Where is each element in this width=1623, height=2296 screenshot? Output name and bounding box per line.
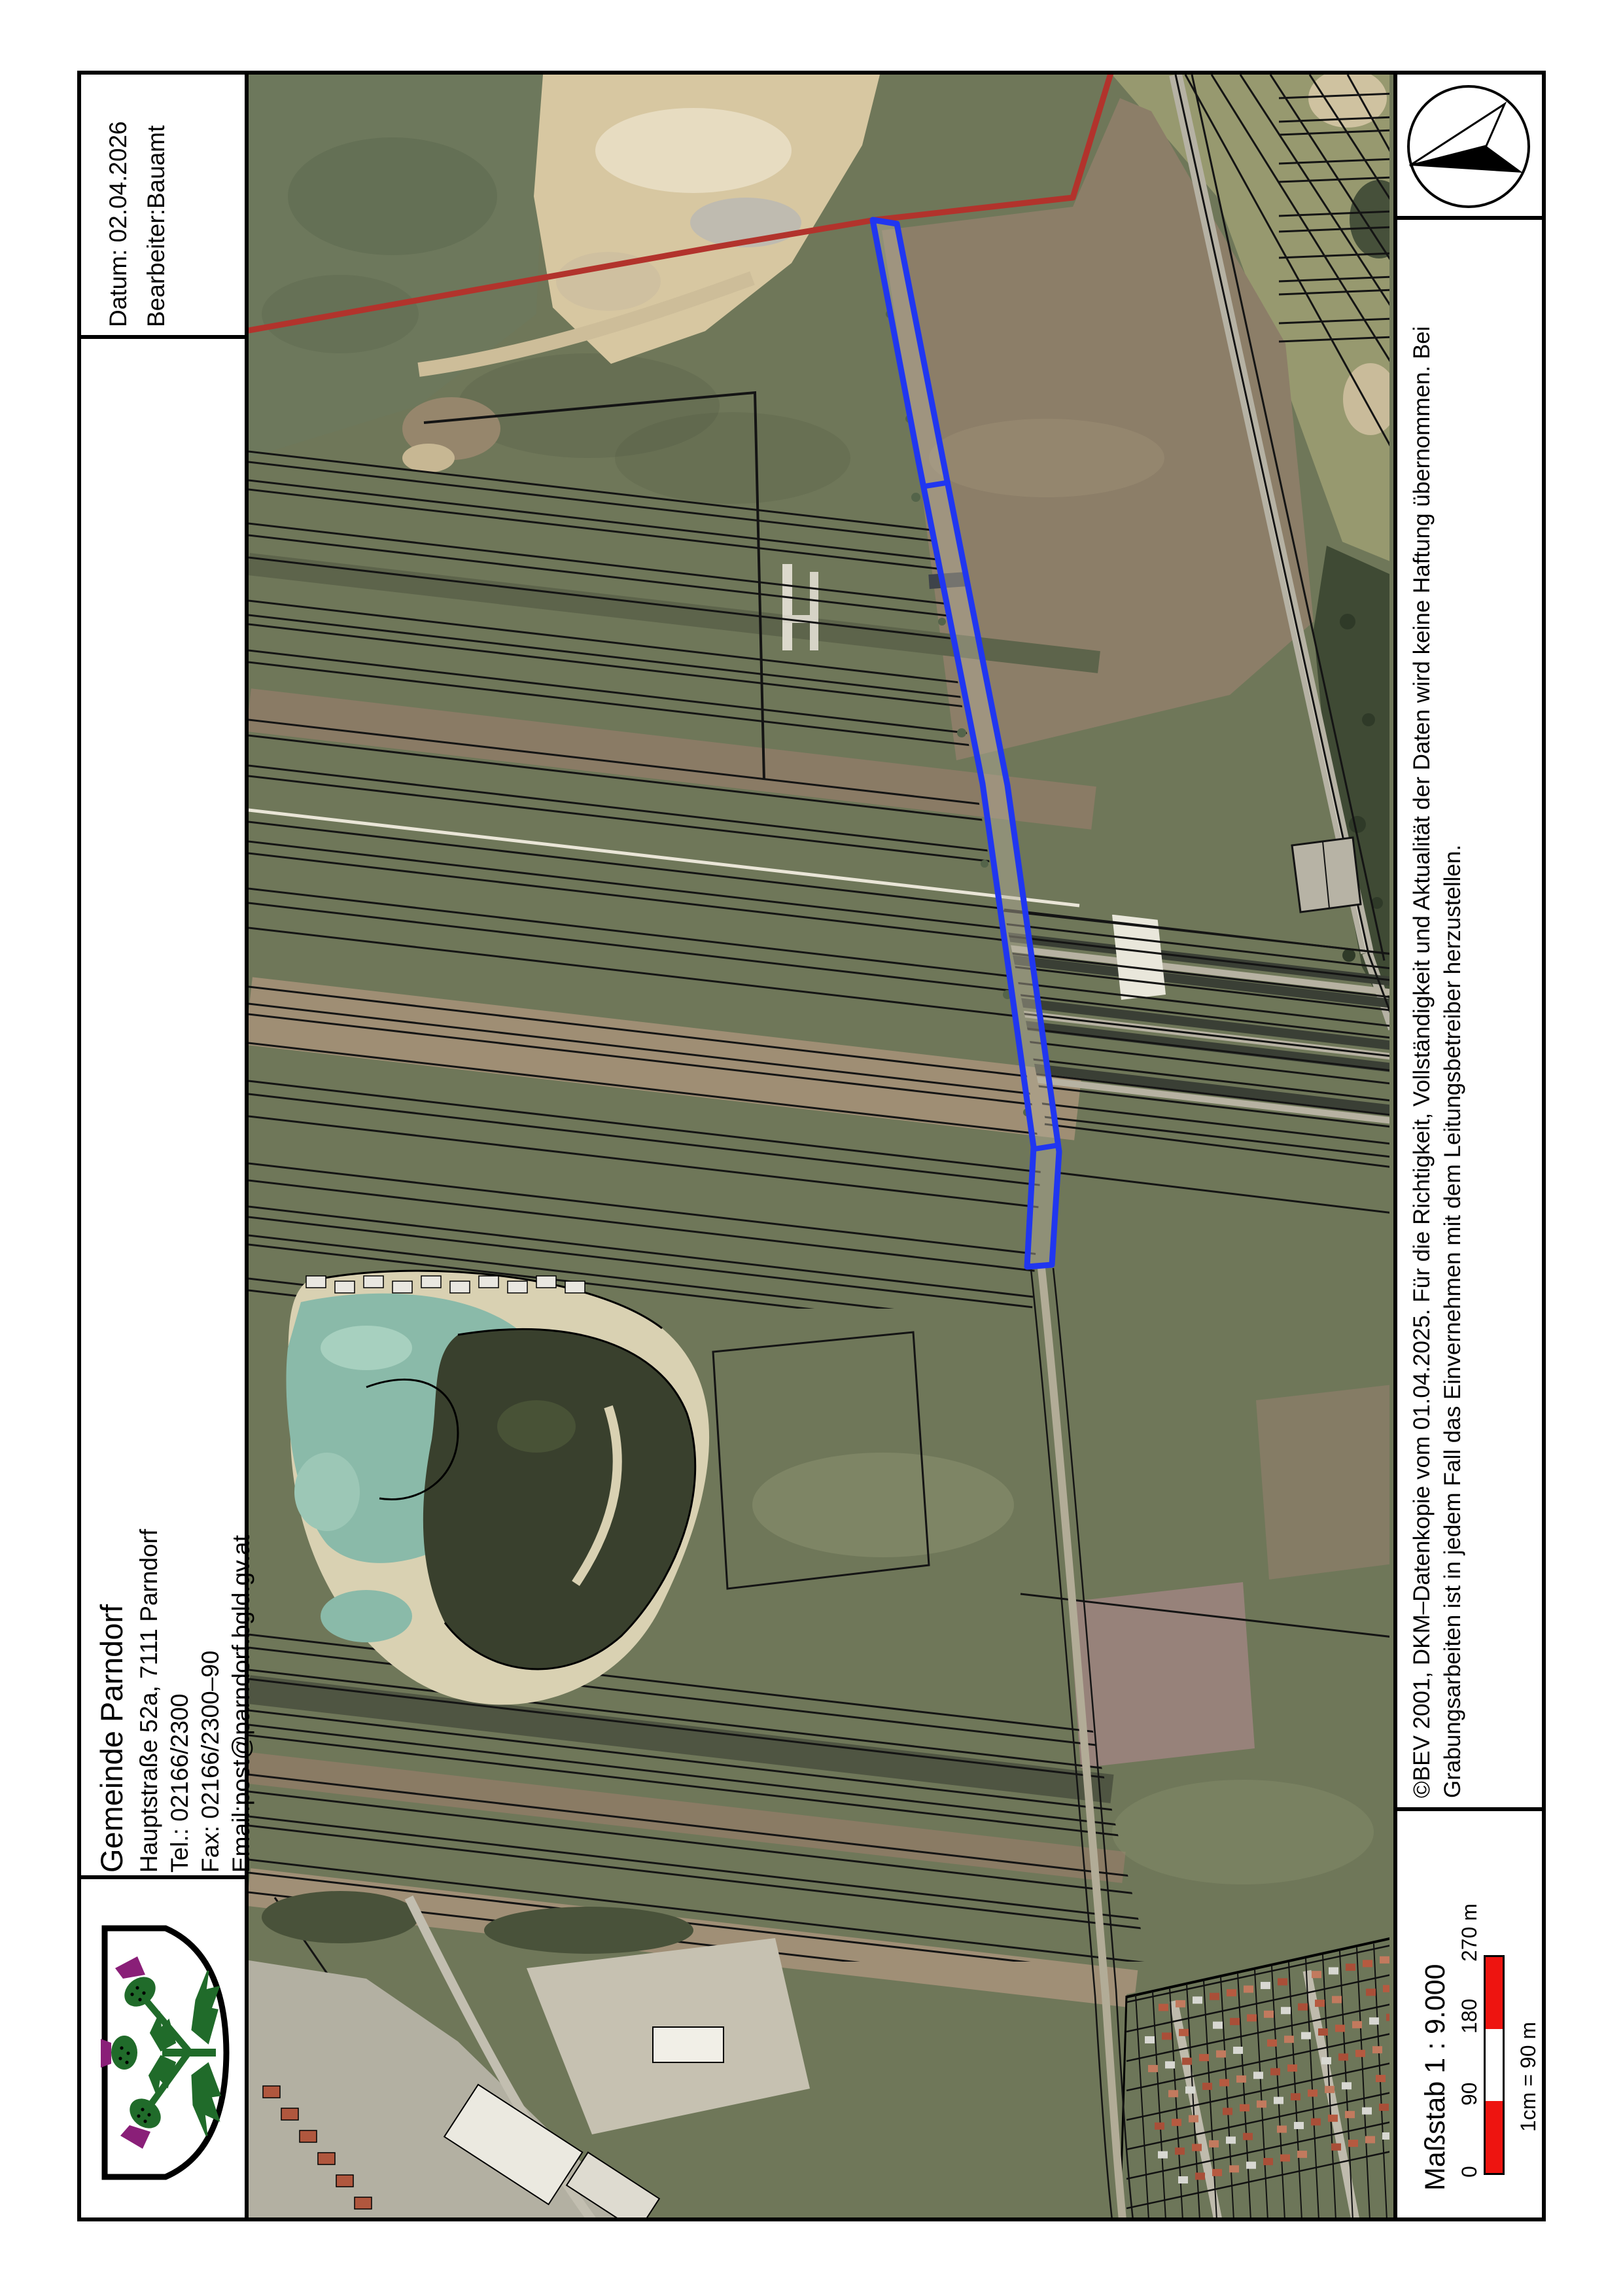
disclaimer-text: ©BEV 2001, DKM–Datenkopie vom 01.04.2025… [1406,326,1468,1798]
disclaimer-line2: Grabungsarbeiten ist in jedem Fall das E… [1437,326,1468,1798]
scale-label: Maßstab 1 : 9.000 [1418,1964,1454,2191]
disclaimer-line1: ©BEV 2001, DKM–Datenkopie vom 01.04.2025… [1406,326,1437,1798]
municipality-email: Email:post@parndorf.bgld.gv.at [226,1529,256,1873]
municipality-contact-text: Gemeinde Parndorf Hauptstraße 52a, 7111 … [90,1529,256,1873]
date-editor-text: Datum: 02.04.2026 Bearbeiter:Bauamt [99,121,175,327]
scale-equivalence: 1cm = 90 m [1515,2022,1541,2132]
scale-bar-segment [1486,2101,1503,2173]
scale-bar [1484,1955,1505,2175]
north-arrow-icon [1393,75,1542,216]
aerial-map [249,75,1389,2217]
coat-of-arms-icon [77,1879,249,2217]
scale-bar-segment [1486,1957,1503,2029]
scale-tick-0: 0 [1456,2166,1482,2178]
municipality-address: Hauptstraße 52a, 7111 Parndorf [133,1529,164,1873]
scale-tick-270: 270 m [1456,1903,1482,1962]
date-label: Datum: 02.04.2026 [99,121,137,327]
municipality-tel: Tel.: 02166/2300 [164,1529,195,1873]
scale-bar-segment [1486,2029,1503,2101]
scale-tick-180: 180 [1456,1999,1482,2034]
municipality-name: Gemeinde Parndorf [90,1529,133,1873]
editor-label: Bearbeiter:Bauamt [137,121,175,327]
map-sheet: Datum: 02.04.2026 Bearbeiter:Bauamt Geme… [0,0,1623,2296]
municipality-fax: Fax: 02166/2300–90 [195,1529,226,1873]
scale-tick-90: 90 [1456,2082,1482,2106]
